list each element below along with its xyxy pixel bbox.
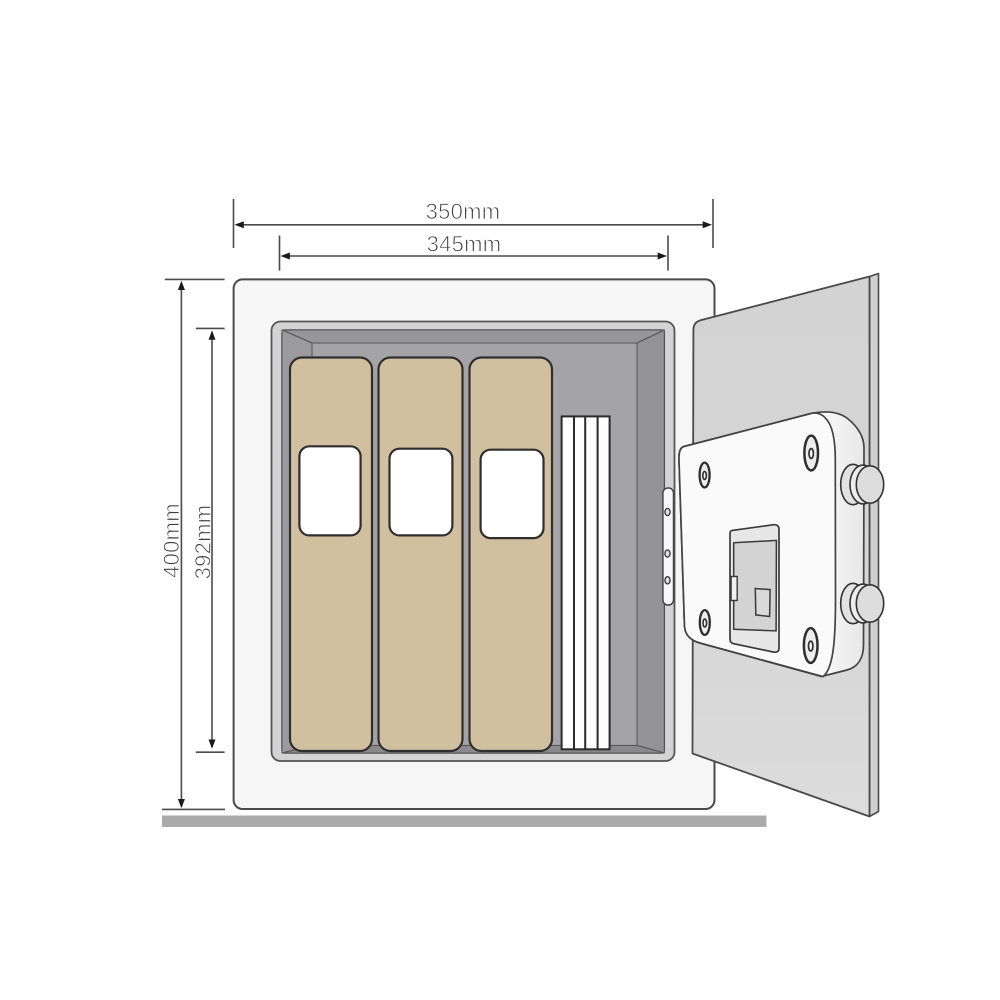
svg-text:345mm: 345mm bbox=[427, 232, 502, 257]
svg-text:400mm: 400mm bbox=[159, 503, 184, 578]
svg-text:350mm: 350mm bbox=[426, 199, 501, 224]
svg-text:392mm: 392mm bbox=[191, 505, 216, 580]
